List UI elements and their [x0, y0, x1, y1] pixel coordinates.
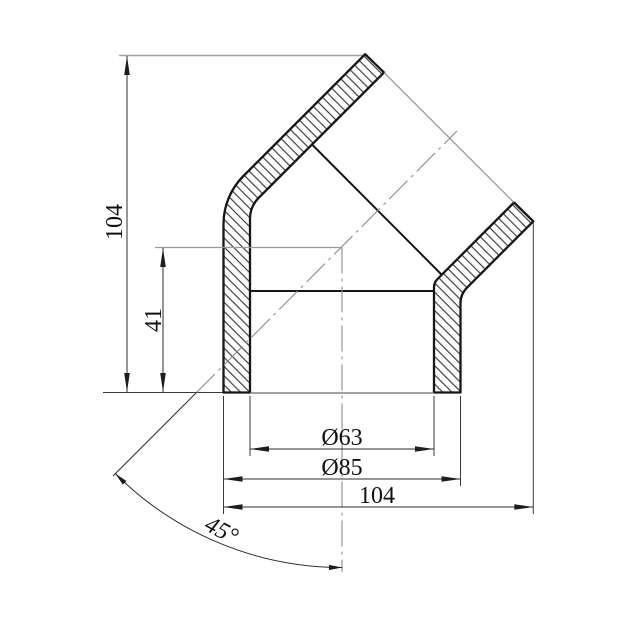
- arrow-height-top: [124, 56, 130, 75]
- arrow-inner-dia-right: [415, 446, 434, 452]
- dim-label-overall-width: 104: [359, 483, 395, 509]
- angled-socket-shoulder-line: [312, 145, 442, 275]
- drawing-canvas: 104 41 Ø63 Ø85 104 45°: [0, 0, 630, 630]
- thin-face-edges: [250, 73, 514, 394]
- arrow-offset-top: [160, 248, 166, 267]
- right-wall-section: [434, 203, 533, 393]
- technical-drawing-45deg-elbow: 104 41 Ø63 Ø85 104 45°: [0, 0, 630, 630]
- elbow-section: [223, 54, 533, 392]
- arrow-inner-dia-left: [250, 446, 269, 452]
- angle-dimension-ray: [113, 393, 197, 477]
- dim-label-inner-diameter: Ø63: [321, 425, 362, 451]
- arrow-width-right: [514, 504, 533, 510]
- arrow-offset-bottom: [160, 373, 166, 392]
- arrow-angle-arc-lower: [329, 565, 342, 570]
- end-face-edge: [384, 73, 514, 203]
- arrow-outer-dia-right: [442, 476, 461, 482]
- dim-label-outer-diameter: Ø85: [321, 455, 362, 481]
- arrow-width-left: [224, 504, 243, 510]
- arrow-outer-dia-left: [224, 476, 243, 482]
- dim-label-socket-offset: 41: [141, 308, 167, 332]
- dim-label-overall-height: 104: [102, 204, 128, 240]
- arrow-height-bottom: [124, 373, 130, 392]
- dim-label-bend-angle: 45°: [200, 511, 242, 550]
